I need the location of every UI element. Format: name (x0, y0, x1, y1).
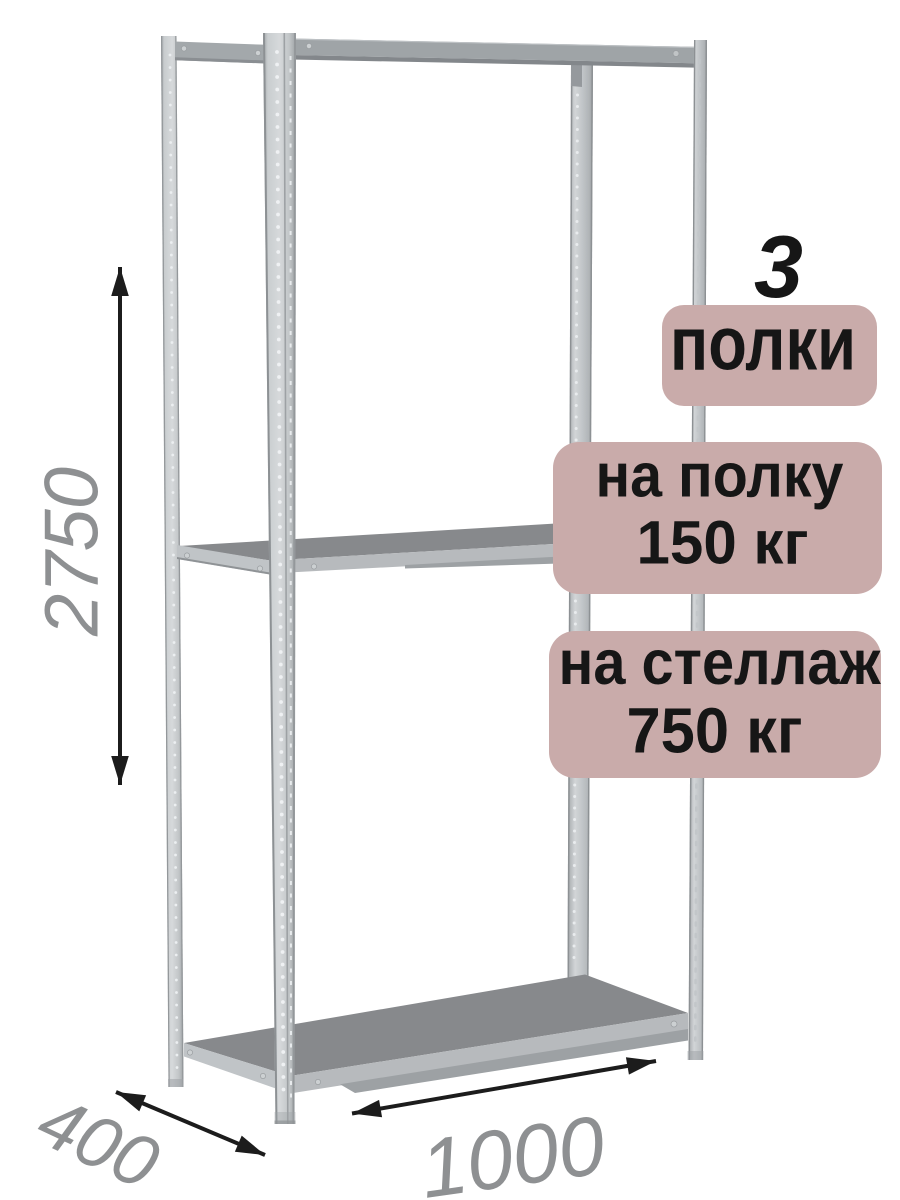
svg-text:полки: полки (670, 302, 856, 387)
svg-text:2750: 2750 (30, 467, 115, 637)
svg-text:750 кг: 750 кг (627, 695, 803, 767)
svg-text:на полку: на полку (596, 442, 844, 511)
svg-text:на стеллаж: на стеллаж (559, 628, 882, 698)
svg-text:150 кг: 150 кг (637, 509, 809, 577)
